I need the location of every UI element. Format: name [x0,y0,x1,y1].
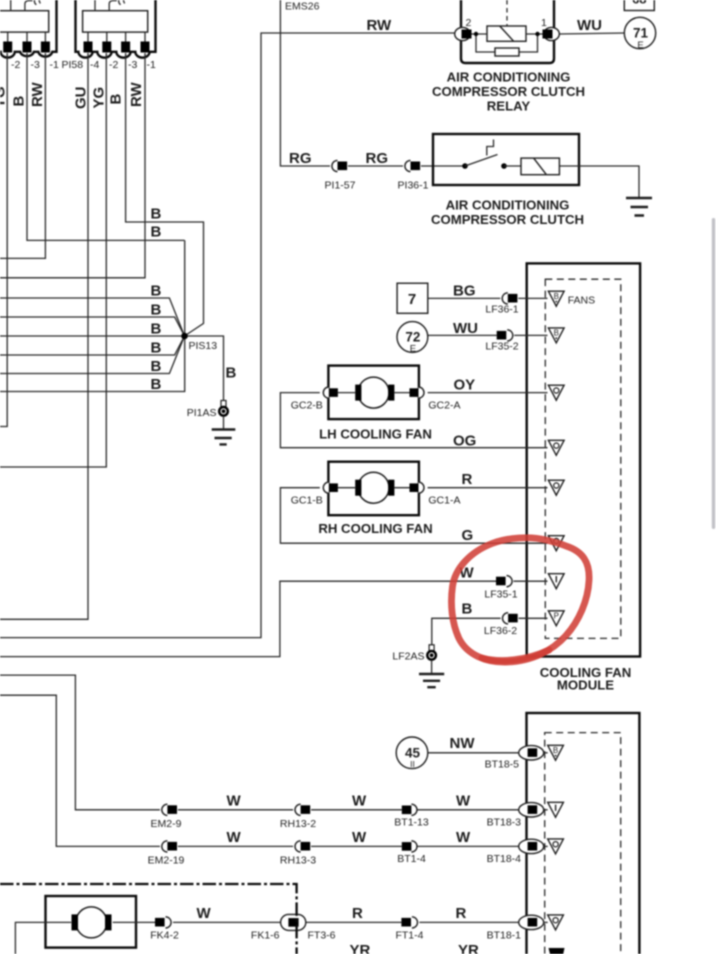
svg-text:W: W [352,792,367,809]
svg-text:YG: YG [91,87,108,109]
svg-text:-2: -2 [109,59,118,71]
svg-text:B: B [151,302,162,319]
svg-text:B: B [554,329,559,338]
svg-text:B: B [108,94,125,105]
svg-text:E: E [637,40,643,51]
svg-text:FK4-2: FK4-2 [150,929,179,941]
svg-text:G: G [462,527,474,544]
svg-text:GC1-A: GC1-A [428,495,460,507]
svg-text:B: B [151,283,162,300]
svg-text:RW: RW [128,81,145,107]
svg-text:YR: YR [350,942,371,954]
svg-text:OY: OY [454,377,476,394]
svg-text:R: R [456,905,467,922]
svg-text:RH COOLING FAN: RH COOLING FAN [318,521,432,536]
svg-text:B: B [554,292,559,301]
svg-text:P: P [554,612,559,621]
svg-text:RW: RW [367,17,393,34]
svg-text:2: 2 [466,17,472,29]
svg-text:LF35-1: LF35-1 [484,588,517,600]
svg-text:-1: -1 [50,59,59,71]
svg-text:FANS: FANS [568,295,595,307]
svg-text:BT18-4: BT18-4 [487,853,522,865]
svg-text:72: 72 [405,330,420,345]
svg-text:BT18-3: BT18-3 [487,817,522,829]
svg-text:GC2-B: GC2-B [291,400,323,412]
svg-text:EM2-19: EM2-19 [148,855,185,867]
svg-text:W: W [352,829,367,846]
svg-text:GC1-B: GC1-B [291,495,323,507]
svg-text:R: R [462,471,473,488]
svg-text:LH COOLING FAN: LH COOLING FAN [319,427,432,442]
svg-text:B: B [151,376,162,393]
svg-text:7: 7 [408,291,416,308]
svg-text:W: W [197,905,212,922]
svg-text:-3: -3 [128,59,137,71]
svg-text:GU: GU [73,87,90,110]
svg-text:B: B [462,601,473,618]
svg-text:GC2-A: GC2-A [428,400,460,412]
svg-text:RG: RG [366,150,389,167]
svg-text:B: B [151,321,162,338]
svg-text:1: 1 [541,17,547,29]
svg-text:-3: -3 [31,59,40,71]
svg-text:LF35-2: LF35-2 [485,341,518,353]
svg-text:W: W [227,829,242,846]
svg-text:W: W [456,792,471,809]
svg-text:II: II [410,759,415,769]
svg-text:B: B [10,96,27,107]
svg-text:B: B [151,358,162,375]
svg-text:LF36-1: LF36-1 [485,304,518,316]
svg-text:NW: NW [450,735,476,752]
svg-text:B: B [151,340,162,357]
svg-text:B: B [151,224,162,241]
svg-text:W: W [227,792,242,809]
svg-text:WU: WU [577,17,602,34]
svg-text:FT1-4: FT1-4 [395,929,423,941]
svg-text:WU: WU [453,320,478,337]
svg-text:YR: YR [458,942,479,954]
svg-text:W: W [456,829,471,846]
svg-text:B: B [226,365,237,382]
svg-text:FK1-6: FK1-6 [251,929,280,941]
svg-text:BT18-5: BT18-5 [485,759,520,771]
svg-text:-1: -1 [147,59,156,71]
svg-text:COMPRESSOR CLUTCH: COMPRESSOR CLUTCH [432,84,585,99]
svg-text:BT18-1: BT18-1 [487,929,522,941]
svg-text:PI36-1: PI36-1 [398,180,429,192]
svg-text:LF36-2: LF36-2 [484,625,517,637]
svg-text:AIR CONDITIONING: AIR CONDITIONING [447,70,571,85]
svg-text:71: 71 [633,26,649,41]
svg-text:OG: OG [453,433,476,450]
svg-text:R: R [352,905,363,922]
svg-text:BT1-4: BT1-4 [397,853,426,865]
svg-text:68: 68 [632,0,646,7]
svg-text:-2: -2 [11,59,20,71]
svg-text:RH13-2: RH13-2 [280,818,316,830]
svg-text:EMS26: EMS26 [285,1,320,13]
svg-text:BG: BG [453,283,476,300]
svg-text:LF2AS: LF2AS [392,651,424,663]
svg-text:B: B [151,206,162,223]
svg-text:E: E [410,344,416,355]
svg-text:PI1AS: PI1AS [187,407,217,419]
svg-text:COMPRESSOR CLUTCH: COMPRESSOR CLUTCH [431,212,584,227]
svg-text:AIR CONDITIONING: AIR CONDITIONING [446,198,570,213]
svg-text:RG: RG [289,150,312,167]
svg-text:MODULE: MODULE [557,678,614,693]
svg-text:EM2-9: EM2-9 [151,818,182,830]
svg-text:PIS13: PIS13 [189,340,218,352]
svg-text:FT3-6: FT3-6 [308,929,336,941]
svg-text:RH13-3: RH13-3 [280,855,316,867]
svg-text:-4: -4 [90,59,99,71]
svg-text:B: B [553,746,558,755]
svg-text:PI58: PI58 [62,59,84,71]
svg-text:PI1-57: PI1-57 [325,180,356,192]
svg-text:RELAY: RELAY [487,99,531,114]
svg-text:BT1-13: BT1-13 [394,817,429,829]
svg-text:RW: RW [29,81,46,107]
